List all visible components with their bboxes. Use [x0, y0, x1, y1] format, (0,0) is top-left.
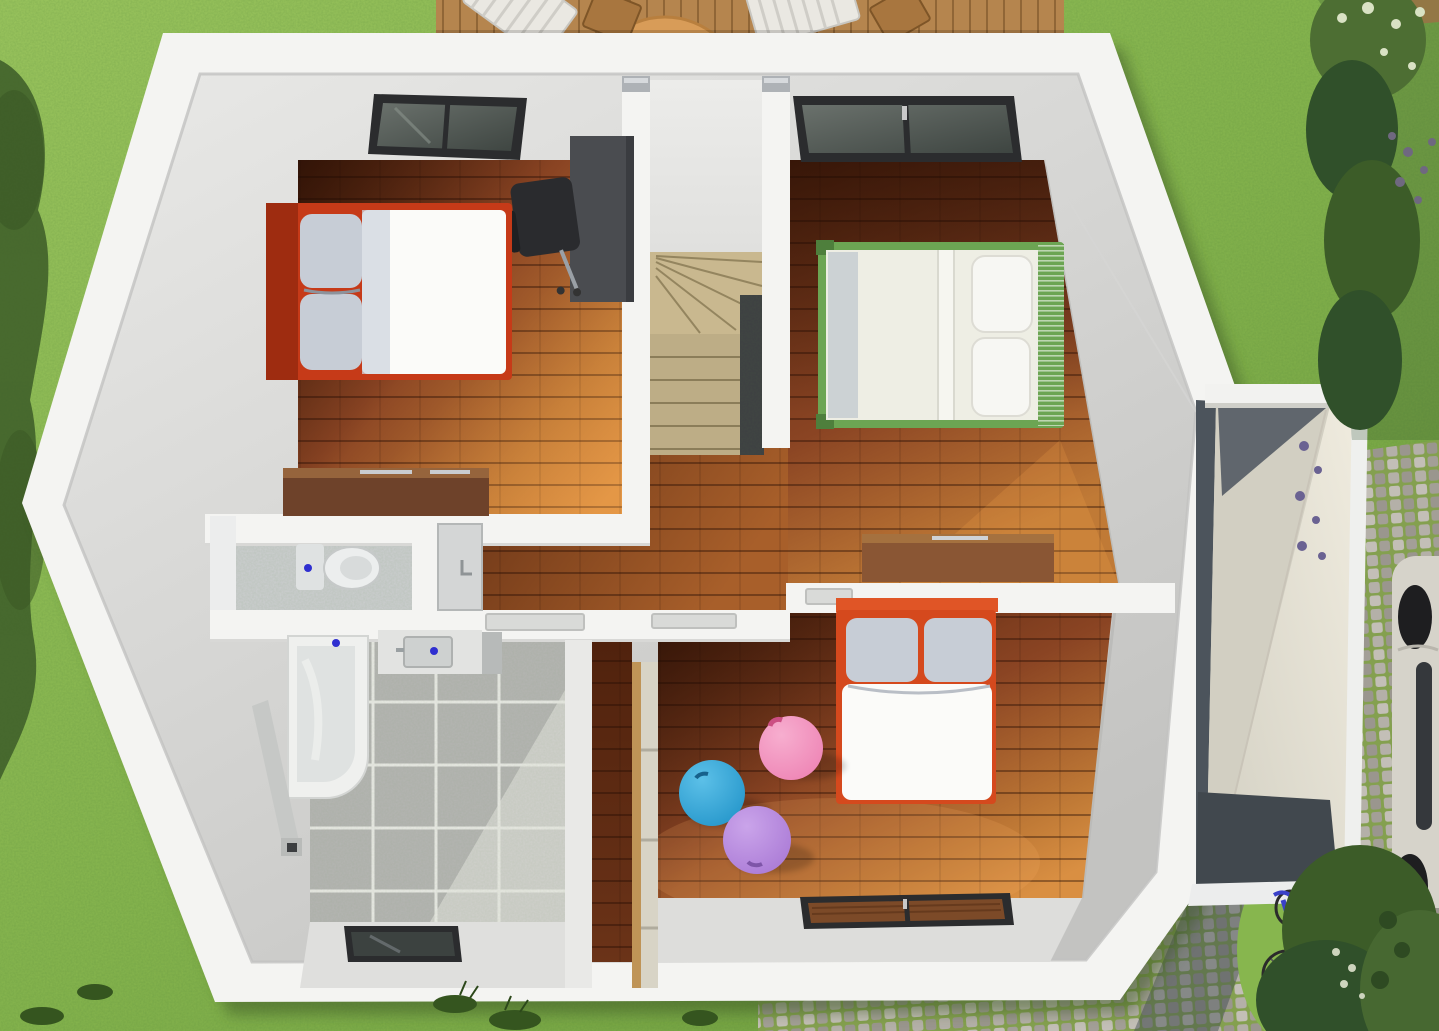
stairwell-right-wall [762, 78, 790, 448]
desk [570, 136, 634, 302]
house [22, 33, 1240, 1002]
skylight-kids-room [800, 893, 1014, 929]
double-bed-green [816, 240, 1064, 429]
dresser-bedroom-1 [283, 468, 489, 516]
door-panel-corridor [652, 614, 736, 628]
garage-annex [1188, 384, 1368, 906]
corridor-floor [592, 640, 632, 962]
pillow [972, 256, 1032, 332]
skylight-bedroom-2 [793, 96, 1022, 162]
headboard [1038, 244, 1064, 426]
pillow [846, 618, 918, 682]
sink [378, 630, 502, 674]
double-bed-red [266, 203, 512, 380]
skylight-bedroom-1 [368, 94, 527, 160]
pillow [300, 294, 362, 370]
bathtub [288, 636, 368, 798]
pillow [972, 338, 1030, 416]
toilet [296, 544, 380, 590]
pillow [300, 214, 362, 288]
duvet [842, 684, 992, 800]
skylight-bathroom [344, 926, 462, 962]
bathroom-right-wall [565, 640, 592, 988]
staircase [650, 80, 764, 455]
wardrobe [632, 662, 658, 988]
door-panel-bathroom [486, 614, 584, 630]
toilet-right-wall [412, 516, 438, 616]
kids-bed-red [836, 598, 998, 804]
headboard [266, 203, 298, 380]
hedge-top-right [1306, 0, 1439, 440]
dresser-bedroom-2 [862, 534, 1054, 582]
toilet-left-wall [210, 516, 236, 612]
vanity-cabinet [438, 524, 482, 610]
floorplan-render [0, 0, 1439, 1031]
pillow [924, 618, 992, 682]
